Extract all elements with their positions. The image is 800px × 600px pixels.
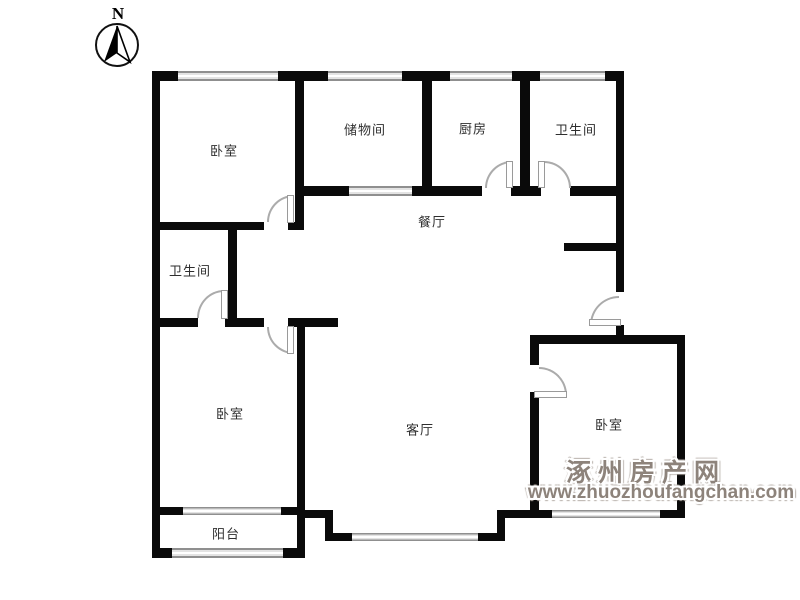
window	[352, 533, 478, 541]
door-arc	[197, 290, 224, 318]
window	[178, 71, 278, 81]
room-label-bathroom-top: 卫生间	[555, 120, 597, 139]
door-panel	[287, 195, 294, 223]
window	[450, 71, 512, 81]
wall	[660, 510, 685, 518]
wall	[530, 335, 539, 365]
wall	[422, 71, 432, 196]
wall	[520, 71, 530, 192]
room-label-bedroom-top-left: 卧室	[210, 141, 238, 160]
wall	[530, 335, 685, 344]
room-label-dining: 餐厅	[418, 212, 446, 231]
door-arc	[544, 161, 571, 188]
wall	[288, 318, 338, 327]
door-panel	[589, 319, 621, 326]
room-label-storage: 储物间	[344, 120, 386, 139]
window	[328, 71, 402, 81]
wall	[228, 222, 237, 322]
window	[183, 507, 281, 515]
wall	[152, 507, 183, 515]
room-label-bathroom-left: 卫生间	[169, 261, 211, 280]
wall	[570, 186, 620, 196]
door-panel	[287, 326, 294, 354]
floor-plan: N	[0, 0, 800, 600]
wall	[283, 548, 305, 558]
room-label-bedroom-bottom-right: 卧室	[595, 415, 623, 434]
wall	[564, 243, 620, 251]
window	[552, 510, 660, 518]
wall	[288, 222, 304, 230]
window	[540, 71, 605, 81]
window	[172, 548, 283, 558]
compass: N	[90, 4, 146, 74]
door-panel	[506, 161, 513, 188]
wall	[303, 186, 349, 196]
wall	[152, 71, 160, 558]
wall	[152, 222, 264, 230]
room-label-living: 客厅	[406, 420, 434, 439]
wall	[297, 318, 305, 514]
door-panel	[538, 161, 545, 188]
wall	[295, 71, 304, 230]
door-panel	[221, 290, 228, 319]
wall	[152, 548, 172, 558]
wall	[497, 510, 535, 518]
wall	[225, 318, 264, 327]
north-arrow-icon	[95, 23, 139, 67]
wall	[325, 533, 352, 541]
door-panel	[534, 391, 567, 398]
room-label-bedroom-bottom-left: 卧室	[216, 404, 244, 423]
watermark-url: www.zhuozhoufangchan.com	[528, 482, 794, 504]
room-label-balcony: 阳台	[212, 524, 240, 543]
compass-north-label: N	[90, 4, 146, 24]
room-label-kitchen: 厨房	[459, 119, 487, 138]
wall	[152, 318, 198, 327]
wall	[616, 71, 624, 292]
window	[349, 186, 412, 196]
